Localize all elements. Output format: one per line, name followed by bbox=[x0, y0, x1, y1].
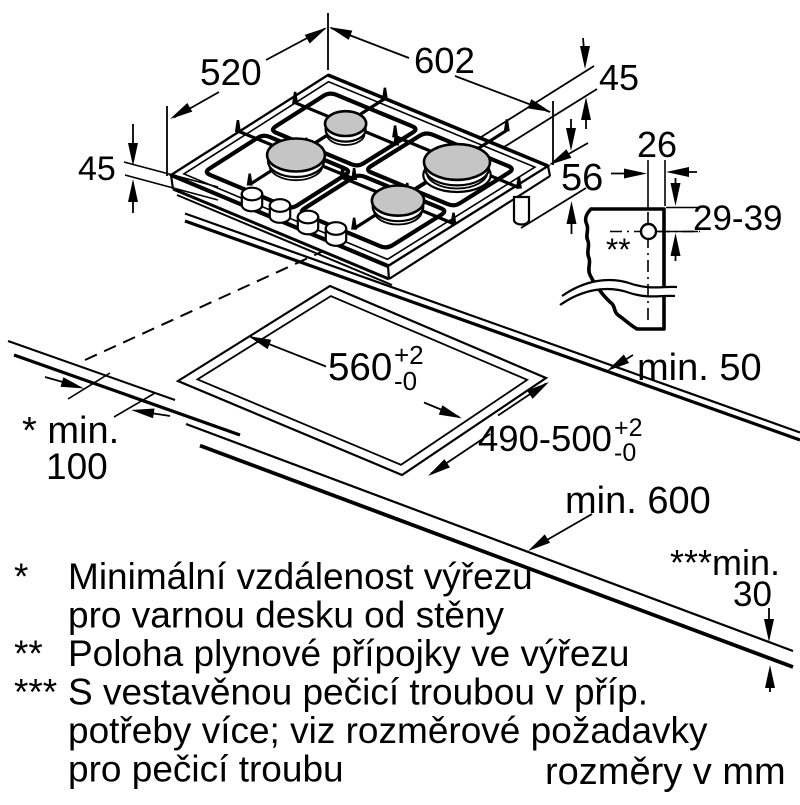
svg-text:100: 100 bbox=[46, 446, 108, 487]
svg-text:**: ** bbox=[14, 633, 43, 674]
svg-text:+2: +2 bbox=[614, 414, 643, 442]
svg-text:-0: -0 bbox=[394, 366, 417, 396]
svg-text:26: 26 bbox=[637, 124, 677, 165]
svg-text:pro varnou desku od stěny: pro varnou desku od stěny bbox=[68, 595, 505, 636]
svg-text:rozměry v mm: rozměry v mm bbox=[545, 751, 786, 793]
svg-text:S vestavěnou pečicí troubou v: S vestavěnou pečicí troubou v příp. bbox=[68, 672, 648, 713]
svg-text:Poloha plynové přípojky ve výř: Poloha plynové přípojky ve výřezu bbox=[68, 633, 629, 674]
svg-text:min. 50: min. 50 bbox=[637, 347, 762, 389]
svg-text:602: 602 bbox=[414, 40, 475, 81]
svg-text:Minimální vzdálenost výřezu: Minimální vzdálenost výřezu bbox=[68, 556, 533, 597]
svg-text:**: ** bbox=[606, 231, 631, 267]
svg-text:56: 56 bbox=[561, 157, 603, 199]
svg-text:***: *** bbox=[14, 672, 57, 713]
svg-text:30: 30 bbox=[733, 575, 772, 614]
svg-text:*: * bbox=[14, 556, 28, 597]
svg-text:520: 520 bbox=[200, 52, 262, 93]
svg-text:min. 600: min. 600 bbox=[565, 480, 711, 522]
svg-text:pro pečicí troubu: pro pečicí troubu bbox=[68, 749, 344, 790]
svg-text:490-500: 490-500 bbox=[478, 418, 612, 459]
svg-text:potřeby více; viz rozměrové po: potřeby více; viz rozměrové požadavky bbox=[68, 710, 708, 751]
svg-text:-0: -0 bbox=[614, 439, 636, 467]
svg-text:45: 45 bbox=[599, 57, 639, 98]
svg-text:45: 45 bbox=[78, 150, 116, 188]
svg-text:29-39: 29-39 bbox=[693, 199, 783, 238]
svg-text:560: 560 bbox=[328, 346, 392, 389]
